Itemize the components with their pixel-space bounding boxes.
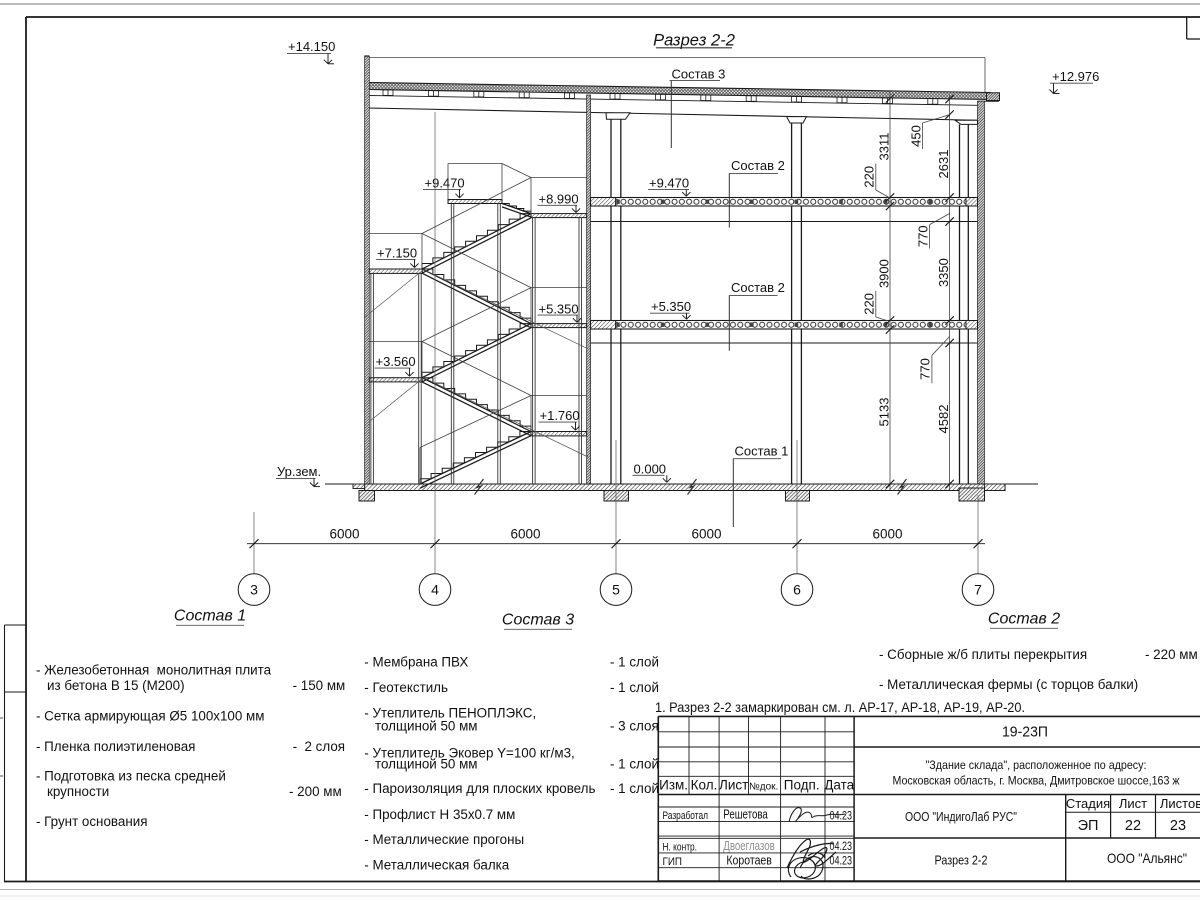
svg-text:6000: 6000 xyxy=(329,527,359,542)
svg-text:6: 6 xyxy=(793,582,801,598)
svg-text:7: 7 xyxy=(974,582,982,598)
svg-text:Н. контр.: Н. контр. xyxy=(663,841,698,853)
svg-text:5133: 5133 xyxy=(876,398,891,427)
svg-text:- 200 мм: - 200 мм xyxy=(289,784,342,799)
svg-text:ООО "ИндигоЛаб РУС": ООО "ИндигоЛаб РУС" xyxy=(905,810,1017,824)
svg-text:- Металлические прогоны: - Металлические прогоны xyxy=(364,832,524,847)
svg-text:ГИП: ГИП xyxy=(663,856,683,868)
svg-text:5: 5 xyxy=(612,582,620,598)
svg-text:Коротаев: Коротаев xyxy=(726,854,772,868)
svg-text:- 2 слоя: - 2 слоя xyxy=(293,739,345,754)
svg-text:+5.350: +5.350 xyxy=(651,299,691,314)
svg-text:6000: 6000 xyxy=(691,527,721,542)
svg-text:3900: 3900 xyxy=(876,259,891,288)
svg-text:Разработал: Разработал xyxy=(663,810,709,822)
svg-text:+9.470: +9.470 xyxy=(425,176,465,191)
svg-text:Разрез 2-2: Разрез 2-2 xyxy=(935,853,988,868)
svg-text:толщиной 50 мм: толщиной 50 мм xyxy=(375,719,478,734)
svg-text:- Металлическая фермы (с торцо: - Металлическая фермы (с торцов балки) xyxy=(879,677,1138,692)
svg-text:04.23: 04.23 xyxy=(830,856,853,868)
svg-text:Разрез 2-2: Разрез 2-2 xyxy=(653,32,735,50)
svg-text:22: 22 xyxy=(1125,818,1141,834)
svg-text:1. Разрез 2-2 замаркирован см.: 1. Разрез 2-2 замаркирован см. л. АР-17,… xyxy=(655,700,1025,715)
svg-text:- Геотекстиль: - Геотекстиль xyxy=(364,680,448,695)
svg-text:220: 220 xyxy=(862,166,877,188)
svg-text:- Грунт основания: - Грунт основания xyxy=(36,814,147,829)
svg-text:04.23: 04.23 xyxy=(830,841,853,853)
svg-text:4582: 4582 xyxy=(936,405,951,434)
svg-text:ЭП: ЭП xyxy=(1078,818,1099,834)
svg-text:6000: 6000 xyxy=(510,527,540,542)
svg-text:Лист: Лист xyxy=(719,778,748,793)
svg-text:23: 23 xyxy=(1170,818,1186,834)
svg-text:4: 4 xyxy=(431,582,439,598)
svg-text:Решетова: Решетова xyxy=(723,808,768,822)
svg-text:Состав 1: Состав 1 xyxy=(174,608,246,625)
svg-text:04.23: 04.23 xyxy=(830,811,853,823)
svg-text:Состав 1: Состав 1 xyxy=(735,444,789,459)
svg-text:Подп.: Подп. xyxy=(784,778,820,793)
svg-text:Состав 3: Состав 3 xyxy=(672,67,726,82)
svg-text:- Пароизоляция для плоских кро: - Пароизоляция для плоских кровель xyxy=(364,781,595,796)
svg-text:Изм.: Изм. xyxy=(659,778,688,793)
svg-text:Московская область, г. Москва,: Московская область, г. Москва, Дмитровск… xyxy=(893,774,1181,788)
svg-text:220: 220 xyxy=(862,293,877,315)
svg-text:3: 3 xyxy=(250,582,258,598)
svg-text:770: 770 xyxy=(918,358,933,380)
svg-text:Стадия: Стадия xyxy=(1066,796,1110,811)
svg-text:- 220 мм: - 220 мм xyxy=(1145,647,1198,662)
svg-text:крупности: крупности xyxy=(47,784,109,799)
svg-text:Кол.: Кол. xyxy=(691,778,718,793)
svg-text:Ур.зем.: Ур.зем. xyxy=(277,464,321,479)
svg-text:№док.: №док. xyxy=(749,782,778,793)
svg-text:- 1 слой: - 1 слой xyxy=(610,680,659,695)
svg-text:Состав 2: Состав 2 xyxy=(731,158,785,173)
svg-text:+1.760: +1.760 xyxy=(540,408,580,423)
svg-text:Состав 2: Состав 2 xyxy=(988,611,1060,628)
svg-text:Листов: Листов xyxy=(1160,796,1200,811)
svg-text:3311: 3311 xyxy=(876,133,891,161)
svg-text:- Сетка армирующая Ø5 100х100: - Сетка армирующая Ø5 100х100 мм xyxy=(36,709,264,724)
svg-text:0.000: 0.000 xyxy=(634,461,667,476)
svg-text:2631: 2631 xyxy=(936,150,951,179)
svg-text:19-23П: 19-23П xyxy=(1002,724,1048,741)
svg-text:- 150 мм: - 150 мм xyxy=(293,678,346,693)
svg-text:Состав 3: Состав 3 xyxy=(502,612,574,629)
svg-text:из бетона В 15 (М200): из бетона В 15 (М200) xyxy=(47,678,185,693)
svg-text:+12.976: +12.976 xyxy=(1052,69,1099,84)
svg-text:- 1 слой: - 1 слой xyxy=(610,655,659,670)
svg-text:- Подготовка из песка средней: - Подготовка из песка средней xyxy=(36,769,226,784)
svg-text:- Пленка полиэтиленовая: - Пленка полиэтиленовая xyxy=(36,739,195,754)
svg-text:- Металлическая балка: - Металлическая балка xyxy=(364,858,509,873)
svg-text:- Железобетонная монолитная п: - Железобетонная монолитная плита xyxy=(36,663,272,678)
svg-text:Двоеглазов: Двоеглазов xyxy=(723,839,775,853)
svg-text:3350: 3350 xyxy=(936,258,951,287)
svg-text:+9.470: +9.470 xyxy=(649,176,689,191)
svg-text:- 1 слой: - 1 слой xyxy=(610,757,659,772)
svg-text:- Профлист Н 35х0.7 мм: - Профлист Н 35х0.7 мм xyxy=(364,807,515,822)
svg-text:+8.990: +8.990 xyxy=(539,192,579,207)
svg-text:Лист: Лист xyxy=(1119,796,1147,811)
svg-text:6000: 6000 xyxy=(872,527,902,542)
svg-text:- Мембрана ПВХ: - Мембрана ПВХ xyxy=(364,655,468,670)
svg-text:Состав 2: Состав 2 xyxy=(731,280,785,295)
svg-text:+14.150: +14.150 xyxy=(288,39,335,54)
svg-text:770: 770 xyxy=(915,225,930,247)
svg-text:"Здание склада", расположенное: "Здание склада", расположенное по адресу… xyxy=(926,758,1147,772)
svg-text:- Сборные ж/б плиты перекрытия: - Сборные ж/б плиты перекрытия xyxy=(879,647,1087,662)
svg-text:ООО "Альянс": ООО "Альянс" xyxy=(1107,850,1187,866)
svg-text:450: 450 xyxy=(908,125,923,147)
svg-text:- 1 слой: - 1 слой xyxy=(610,781,659,796)
svg-text:+5.350: +5.350 xyxy=(539,301,579,316)
svg-text:+7.150: +7.150 xyxy=(377,246,417,261)
svg-text:Дата: Дата xyxy=(824,778,854,793)
svg-text:+3.560: +3.560 xyxy=(376,354,416,369)
svg-text:толщиной 50 мм: толщиной 50 мм xyxy=(375,757,478,772)
svg-text:- 3 слоя: - 3 слоя xyxy=(610,719,659,734)
